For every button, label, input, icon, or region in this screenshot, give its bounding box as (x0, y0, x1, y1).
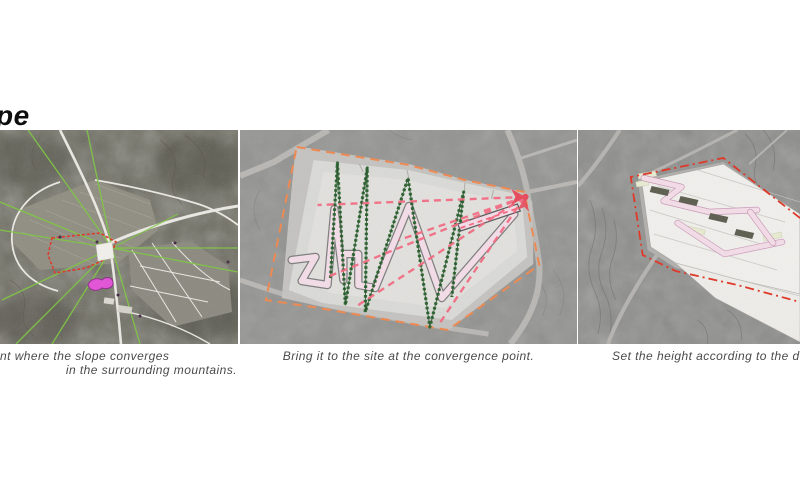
caption-middle: Bring it to the site at the convergence … (240, 349, 577, 363)
caption-right: Set the height according to the d (612, 349, 800, 363)
satellite-map-graphic (0, 130, 238, 344)
page-title: pe (0, 100, 30, 132)
caption-left-line2: in the surrounding mountains. (66, 363, 237, 377)
caption-left-line1: nt where the slope converges (0, 349, 169, 363)
site-plan-graphic (240, 130, 577, 344)
presentation-slide: { "title": { "text": "pe" }, "captions":… (0, 0, 800, 500)
satellite-map-panel (0, 130, 238, 344)
massing-model-graphic (578, 130, 800, 344)
massing-model-panel (578, 130, 800, 344)
site-plan-panel (240, 130, 577, 344)
